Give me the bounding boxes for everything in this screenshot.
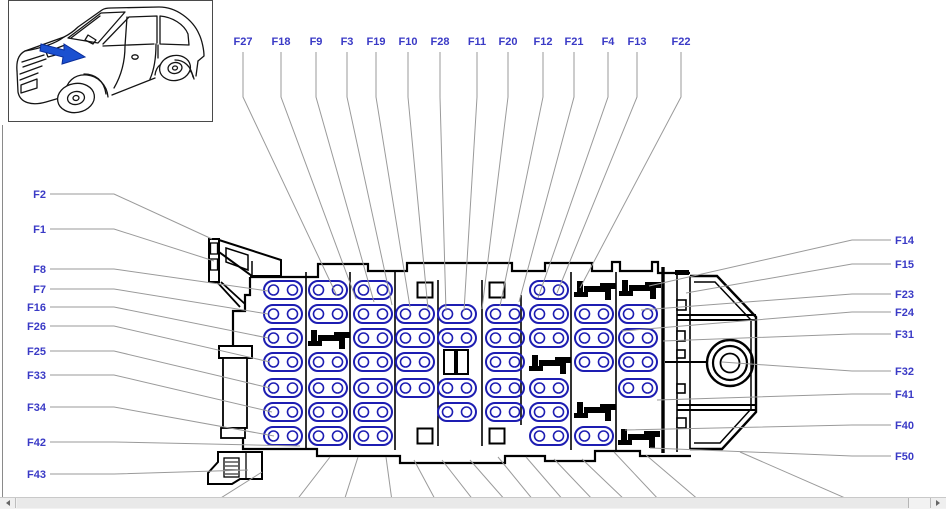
fuse-slot — [438, 379, 476, 397]
fuse-slot — [530, 403, 568, 421]
fuse-label-f50: F50 — [895, 451, 914, 463]
scroll-right-arrow-icon — [936, 500, 943, 506]
fuse-label-f13: F13 — [628, 36, 647, 48]
horizontal-scrollbar[interactable] — [0, 497, 946, 509]
leader-line-bottom — [582, 459, 626, 499]
leader-line-bottom — [498, 457, 534, 499]
fuse-label-f7: F7 — [33, 284, 46, 296]
leader-line-f41 — [657, 394, 891, 400]
fuse-slot — [309, 379, 347, 397]
fuse-slot — [396, 353, 434, 371]
relay-slot — [618, 429, 660, 448]
fuse-slot — [264, 281, 302, 299]
fuse-slot — [619, 305, 657, 323]
bottom-foot — [208, 452, 262, 484]
leader-line-f1 — [50, 229, 214, 261]
fuse-slot — [619, 353, 657, 371]
relay-slot — [619, 280, 661, 299]
fuse-slot — [264, 427, 302, 445]
fuse-label-f18: F18 — [272, 36, 291, 48]
fuse-label-f20: F20 — [499, 36, 518, 48]
fuse-label-f41: F41 — [895, 389, 914, 401]
fuse-slot — [486, 353, 524, 371]
fuse-slot — [309, 403, 347, 421]
leader-line-bottom — [296, 457, 330, 499]
fuse-label-f34: F34 — [27, 402, 47, 414]
leader-line-f21 — [519, 52, 574, 302]
leader-line-f20 — [482, 52, 508, 309]
leader-line-bottom — [442, 460, 474, 499]
leader-line-f2 — [50, 194, 212, 239]
fuse-slot — [396, 329, 434, 347]
fuse-slot — [619, 329, 657, 347]
leader-line-f31 — [663, 334, 891, 341]
fuse-slot — [309, 427, 347, 445]
fuse-label-f2: F2 — [33, 189, 46, 201]
leader-line-f15 — [686, 264, 891, 293]
leader-line-f14 — [649, 240, 891, 286]
relay-slot — [308, 330, 350, 349]
fuse-slot — [309, 281, 347, 299]
fuse-slot — [396, 379, 434, 397]
leader-line-bottom — [344, 457, 358, 499]
fuse-slot — [486, 329, 524, 347]
scrollbar-thumb[interactable] — [17, 498, 909, 508]
fuse-slot — [530, 281, 568, 299]
fuse-label-f28: F28 — [431, 36, 450, 48]
fuse-label-f40: F40 — [895, 420, 914, 432]
fuse-label-f32: F32 — [895, 366, 914, 378]
fuse-label-f14: F14 — [895, 235, 915, 247]
leader-line-f42 — [50, 442, 300, 446]
relay-slot — [574, 281, 616, 300]
fuse-grid — [264, 280, 661, 448]
leader-line-f11 — [464, 52, 477, 311]
fusebox-diagram: F27F18F9F3F19F10F28F11F20F12F21F4F13F22F… — [0, 0, 946, 499]
leader-line-bottom — [740, 452, 852, 499]
fuse-slot — [354, 353, 392, 371]
fusebox-housing — [208, 239, 756, 484]
fuse-label-f31: F31 — [895, 329, 914, 341]
leader-line-f12 — [500, 52, 543, 306]
fuse-label-f11: F11 — [468, 36, 486, 48]
fuse-slot — [264, 403, 302, 421]
fuse-slot — [438, 305, 476, 323]
relay-slot — [574, 402, 616, 421]
leader-line-bottom — [470, 460, 506, 499]
fuse-slot — [354, 403, 392, 421]
fuse-slot — [530, 305, 568, 323]
fuse-slot — [264, 305, 302, 323]
fuse-slot — [354, 427, 392, 445]
scroll-right-button[interactable] — [930, 498, 946, 508]
fuse-label-f15: F15 — [895, 259, 914, 271]
fuse-label-f27: F27 — [234, 36, 253, 48]
fuse-label-f9: F9 — [310, 36, 323, 48]
fuse-label-f3: F3 — [341, 36, 354, 48]
mount-post — [418, 283, 433, 298]
fuse-slot — [530, 329, 568, 347]
fuse-slot — [354, 305, 392, 323]
fuse-label-f1: F1 — [33, 224, 46, 236]
fuse-label-f8: F8 — [33, 264, 46, 276]
fuse-label-f42: F42 — [27, 437, 46, 449]
fuse-slot — [575, 305, 613, 323]
fuse-slot — [575, 353, 613, 371]
leader-line-f18 — [281, 52, 356, 299]
mount-post — [490, 429, 505, 444]
leader-line-bottom — [414, 460, 436, 499]
leader-line-f50 — [650, 448, 891, 456]
fuse-label-f23: F23 — [895, 289, 914, 301]
fuse-slot — [309, 305, 347, 323]
fuse-slot — [354, 329, 392, 347]
leader-line-f10 — [408, 52, 428, 309]
fuse-slot — [438, 403, 476, 421]
manual-page: F27F18F9F3F19F10F28F11F20F12F21F4F13F22F… — [0, 0, 946, 509]
fuse-label-f21: F21 — [565, 36, 584, 48]
leader-line-f8 — [50, 269, 268, 291]
leader-line-f40 — [625, 425, 891, 430]
leader-line-f19 — [376, 52, 410, 307]
leader-line-bottom — [646, 455, 700, 499]
fuse-label-f22: F22 — [672, 36, 691, 48]
fuse-label-f16: F16 — [27, 302, 46, 314]
fuse-slot — [619, 379, 657, 397]
connector-slot — [444, 350, 468, 374]
fuse-slot — [354, 281, 392, 299]
leader-line-f22 — [580, 52, 681, 288]
leader-line-f28 — [440, 52, 446, 311]
fuse-slot — [530, 379, 568, 397]
fuse-label-f10: F10 — [399, 36, 418, 48]
fuse-label-f4: F4 — [602, 36, 616, 48]
fuse-slot — [575, 329, 613, 347]
fuse-slot — [486, 403, 524, 421]
fuse-slot — [264, 329, 302, 347]
fuse-label-f24: F24 — [895, 307, 915, 319]
fuse-slot — [354, 379, 392, 397]
car-inset — [9, 1, 213, 122]
mount-post — [418, 429, 433, 444]
relay-slot — [529, 355, 571, 374]
leader-line-f4 — [538, 52, 608, 298]
fuse-label-f43: F43 — [27, 469, 46, 481]
fuse-label-f33: F33 — [27, 370, 46, 382]
fuse-label-f19: F19 — [367, 36, 386, 48]
fuse-label-f25: F25 — [27, 346, 46, 358]
leader-line-f3 — [347, 52, 392, 305]
scroll-left-button[interactable] — [0, 498, 16, 508]
leader-line-bottom — [386, 457, 392, 499]
scroll-left-arrow-icon — [3, 500, 10, 506]
leader-line-bottom — [614, 452, 660, 499]
fuse-slot — [530, 427, 568, 445]
fuse-slot — [486, 305, 524, 323]
fuse-label-f12: F12 — [534, 36, 553, 48]
fuse-label-f26: F26 — [27, 321, 46, 333]
fuse-slot — [486, 379, 524, 397]
fuse-slot — [438, 329, 476, 347]
fuse-slot — [575, 427, 613, 445]
fuse-slot — [309, 353, 347, 371]
